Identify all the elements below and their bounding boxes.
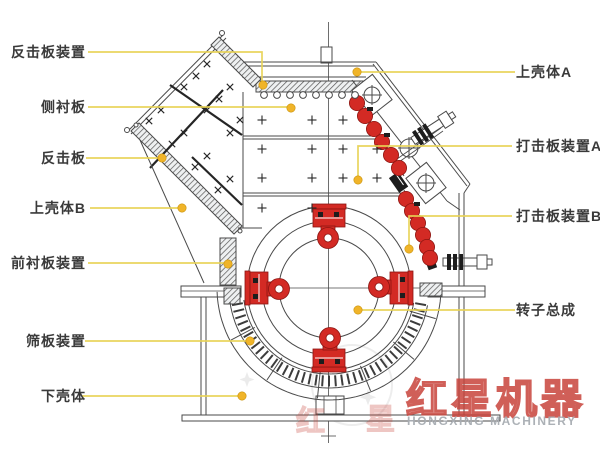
label-impact-plate: 反击板 xyxy=(6,148,86,168)
adjusting-bolt-lower xyxy=(443,254,492,270)
watermark-ghost-char-1: 红 xyxy=(296,405,325,438)
label-blow-bar-assembly-b: 打击板装置B xyxy=(516,206,600,226)
watermark-ghost-char-2: 星 xyxy=(366,404,395,436)
leader-lines xyxy=(82,52,515,396)
feed-opening-stub xyxy=(321,47,332,63)
label-side-liner: 侧衬板 xyxy=(6,97,86,117)
label-lower-casing: 下壳体 xyxy=(6,386,86,406)
label-rotor-assembly: 转子总成 xyxy=(516,300,576,320)
label-blow-bar-assembly-a: 打击板装置A xyxy=(516,136,600,156)
impact-plate-strip xyxy=(131,123,242,234)
screen-end-left xyxy=(224,288,240,304)
top-liner-strip xyxy=(256,81,363,92)
casing-plus-pattern xyxy=(258,116,382,213)
liner-bumps xyxy=(261,92,359,99)
label-upper-casing-b: 上壳体B xyxy=(6,198,86,218)
screen-end-right xyxy=(420,283,442,296)
feed-chute xyxy=(125,31,262,284)
watermark-brand-en: HONGXING MACHINERY xyxy=(407,414,577,428)
upper-casing-a xyxy=(243,47,470,257)
impact-crusher-diagram: 红 星 红星机器 HONGXING MACHINERY xyxy=(0,0,600,450)
diagram-canvas: 红 星 红星机器 HONGXING MACHINERY 反击板装置 侧衬板 反击… xyxy=(0,0,600,450)
label-screen-plate-assembly: 筛板装置 xyxy=(6,331,86,351)
label-front-liner-assembly: 前衬板装置 xyxy=(6,253,86,273)
label-impact-plate-assembly: 反击板装置 xyxy=(6,42,86,62)
label-upper-casing-a: 上壳体A xyxy=(516,62,572,82)
